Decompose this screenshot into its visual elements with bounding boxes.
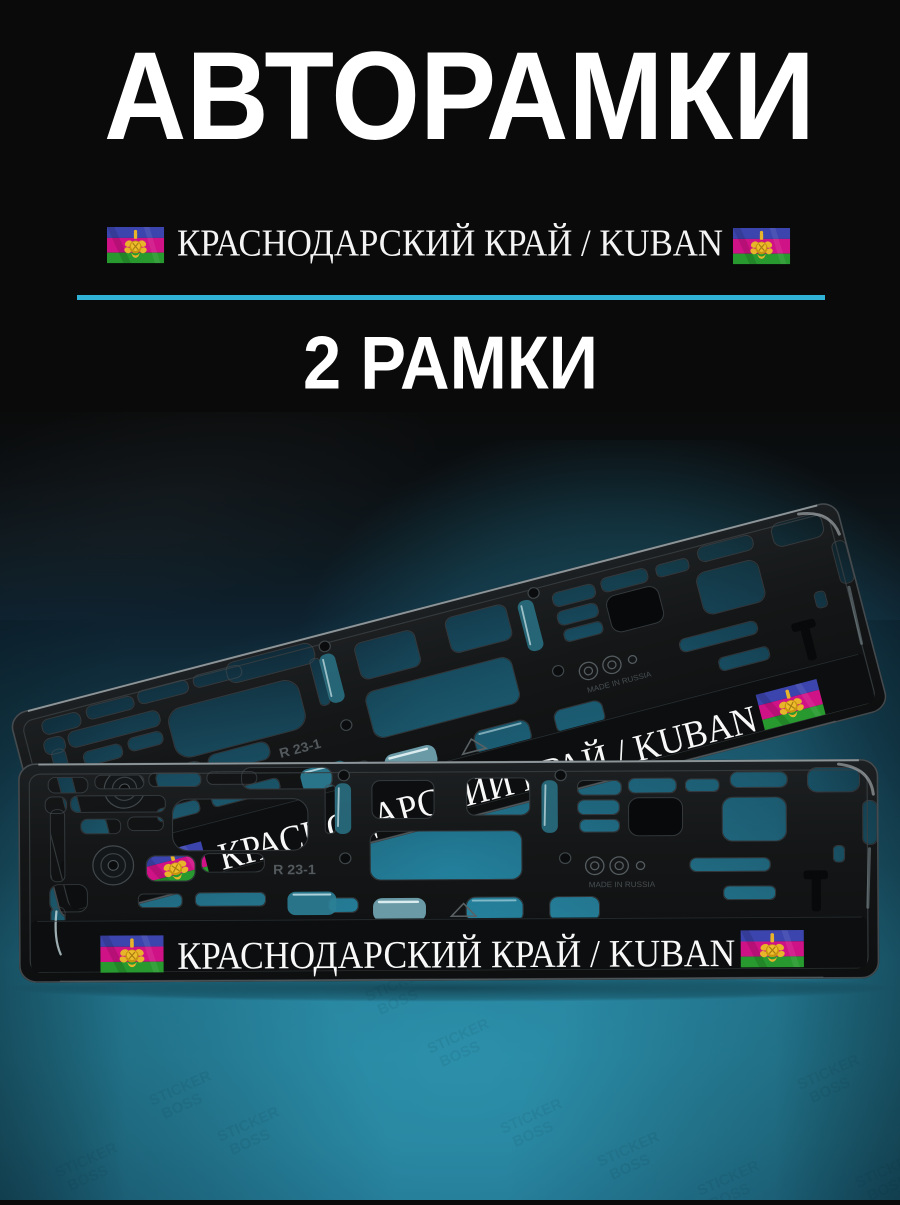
svg-text:КРАСНОДАРСКИЙ КРАЙ / KUBAN: КРАСНОДАРСКИЙ КРАЙ / KUBAN <box>177 223 723 265</box>
svg-text:АВТОРАМКИ: АВТОРАМКИ <box>104 27 815 166</box>
svg-text:2 РАМКИ: 2 РАМКИ <box>303 321 598 405</box>
